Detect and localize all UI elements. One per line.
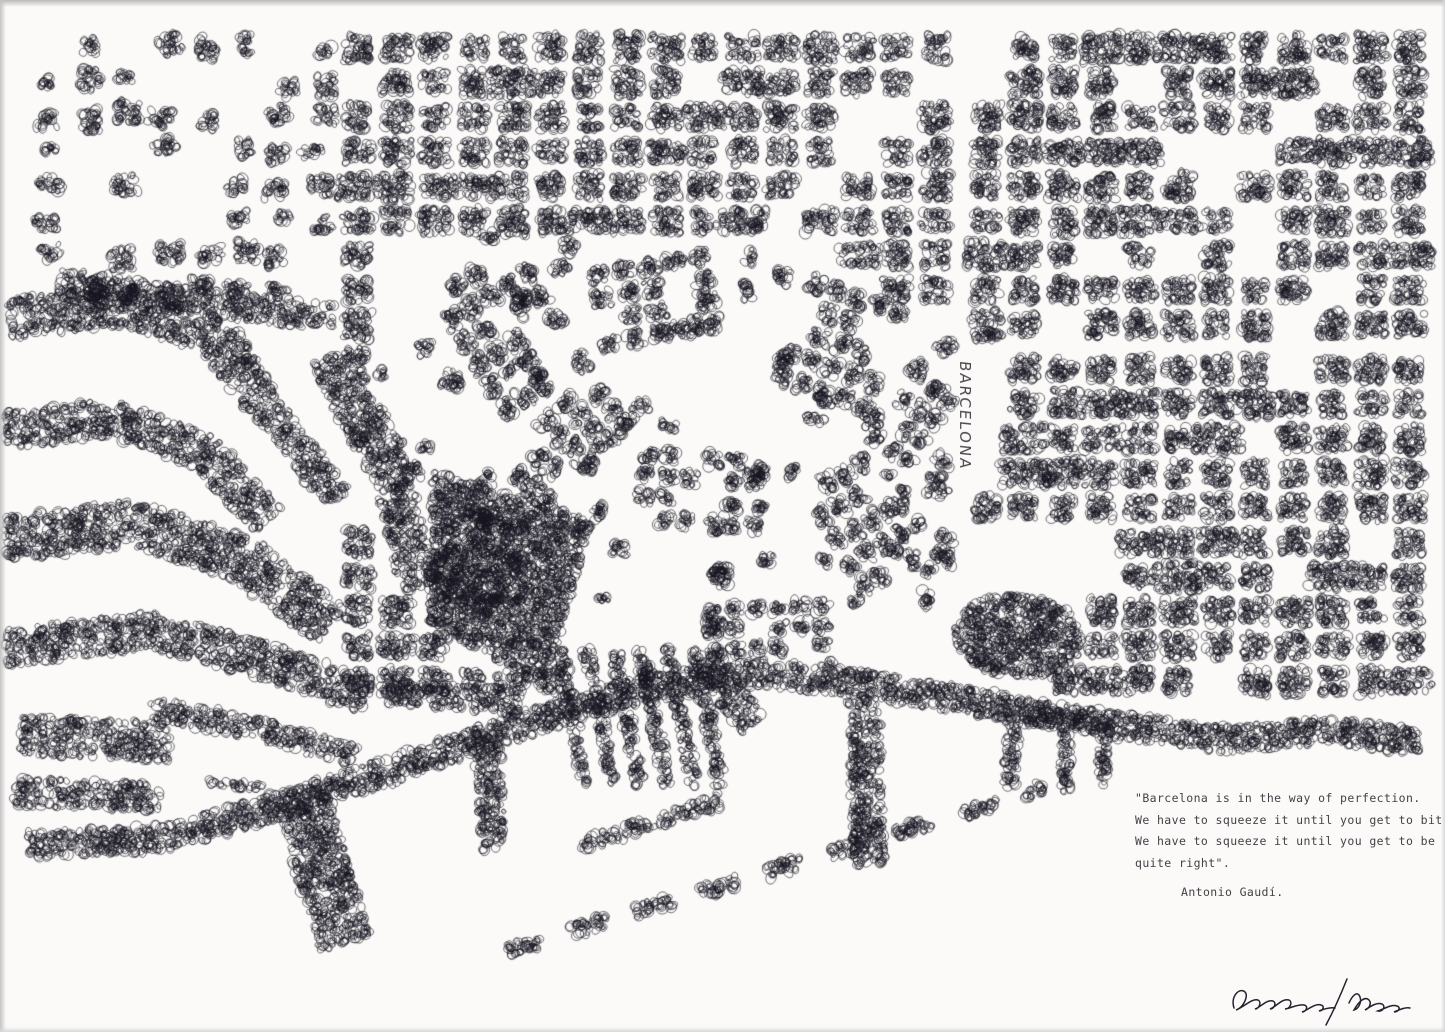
scan-edge-top	[0, 0, 1445, 7]
quote-line: We have to squeeze it until you get to b…	[1135, 810, 1425, 832]
signature-stroke	[1349, 994, 1410, 1012]
quote-attribution: Antonio Gaudí.	[1181, 882, 1425, 904]
signature-stroke	[1326, 979, 1347, 1025]
scan-edge-left	[0, 0, 6, 1032]
signature-stroke	[1233, 991, 1335, 1012]
quote-line: We have to squeeze it until you get to b…	[1135, 831, 1425, 853]
artist-signature	[1226, 976, 1416, 1028]
quote-line: "Barcelona is in the way of perfection.	[1135, 788, 1425, 810]
map-label-barcelona: BARCELONA	[956, 360, 974, 471]
quote-line: quite right".	[1135, 853, 1425, 875]
gaudi-quote: "Barcelona is in the way of perfection. …	[1135, 788, 1425, 904]
artwork-scan: BARCELONA "Barcelona is in the way of pe…	[0, 0, 1445, 1032]
scan-edge-right	[1441, 0, 1445, 1032]
